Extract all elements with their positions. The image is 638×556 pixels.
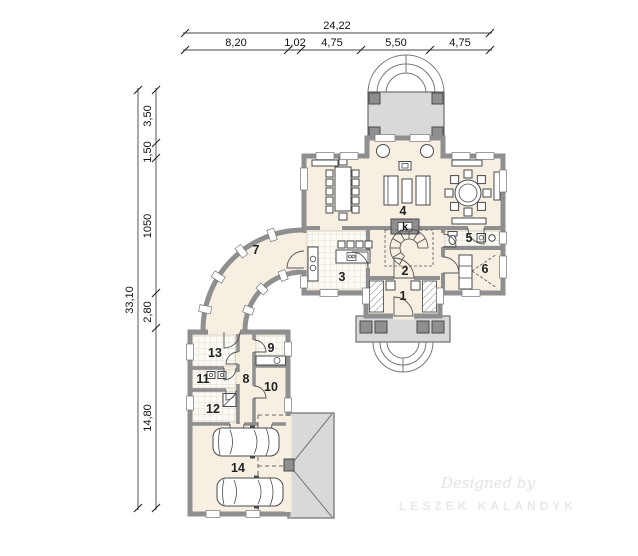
dim-top-seg-2: 4,75 (321, 37, 342, 49)
room-label-2: 2 (402, 264, 409, 278)
dim-top-total: 24,22 (323, 20, 351, 32)
room-label-6: 6 (482, 262, 489, 276)
room-label-13: 13 (208, 346, 222, 360)
dim-left-seg-1: 1,50 (142, 141, 154, 162)
dim-left-seg-4: 14,80 (142, 404, 154, 432)
watermark-line2: LESZEK KALANDYK (399, 499, 577, 513)
room-label-14: 14 (231, 461, 245, 475)
dim-left-seg-0: 3,50 (142, 105, 154, 126)
dimension-left: 33,10 3,50 1,50 1050 2,80 14,80 (124, 86, 160, 512)
room-label-10: 10 (264, 380, 278, 394)
floor-plan-page: 24,22 8,20 1,02 4,75 5,50 4,75 33,10 3,5… (0, 0, 638, 556)
designer-watermark: Designed by LESZEK KALANDYK (399, 474, 577, 513)
room-label-7: 7 (253, 243, 260, 257)
room-label-4: 4 (400, 204, 407, 218)
room-label-8: 8 (243, 372, 250, 386)
room-label-1: 1 (400, 289, 407, 303)
dim-left-seg-3: 2,80 (142, 301, 154, 322)
entrance-porch (356, 316, 450, 372)
room-label-3: 3 (339, 270, 346, 284)
floor-plan-canvas: 24,22 8,20 1,02 4,75 5,50 4,75 33,10 3,5… (0, 0, 638, 556)
dimension-top: 24,22 8,20 1,02 4,75 5,50 4,75 (181, 20, 494, 54)
room-label-9: 9 (268, 341, 275, 355)
room-label-11: 11 (196, 372, 209, 386)
dim-left-total: 33,10 (124, 286, 136, 314)
dim-top-seg-1: 1,02 (284, 37, 305, 49)
driveway (288, 413, 334, 518)
watermark-line1: Designed by (440, 474, 536, 492)
dim-top-seg-0: 8,20 (225, 37, 246, 49)
dim-left-seg-2: 1050 (142, 214, 154, 238)
fireplace-label: k (402, 221, 408, 233)
dim-top-seg-3: 5,50 (385, 37, 406, 49)
room-label-12: 12 (206, 402, 220, 416)
dim-top-seg-4: 4,75 (449, 37, 470, 49)
room-label-5: 5 (466, 231, 473, 245)
north-terrace (368, 55, 444, 140)
garage-wing (187, 328, 295, 517)
